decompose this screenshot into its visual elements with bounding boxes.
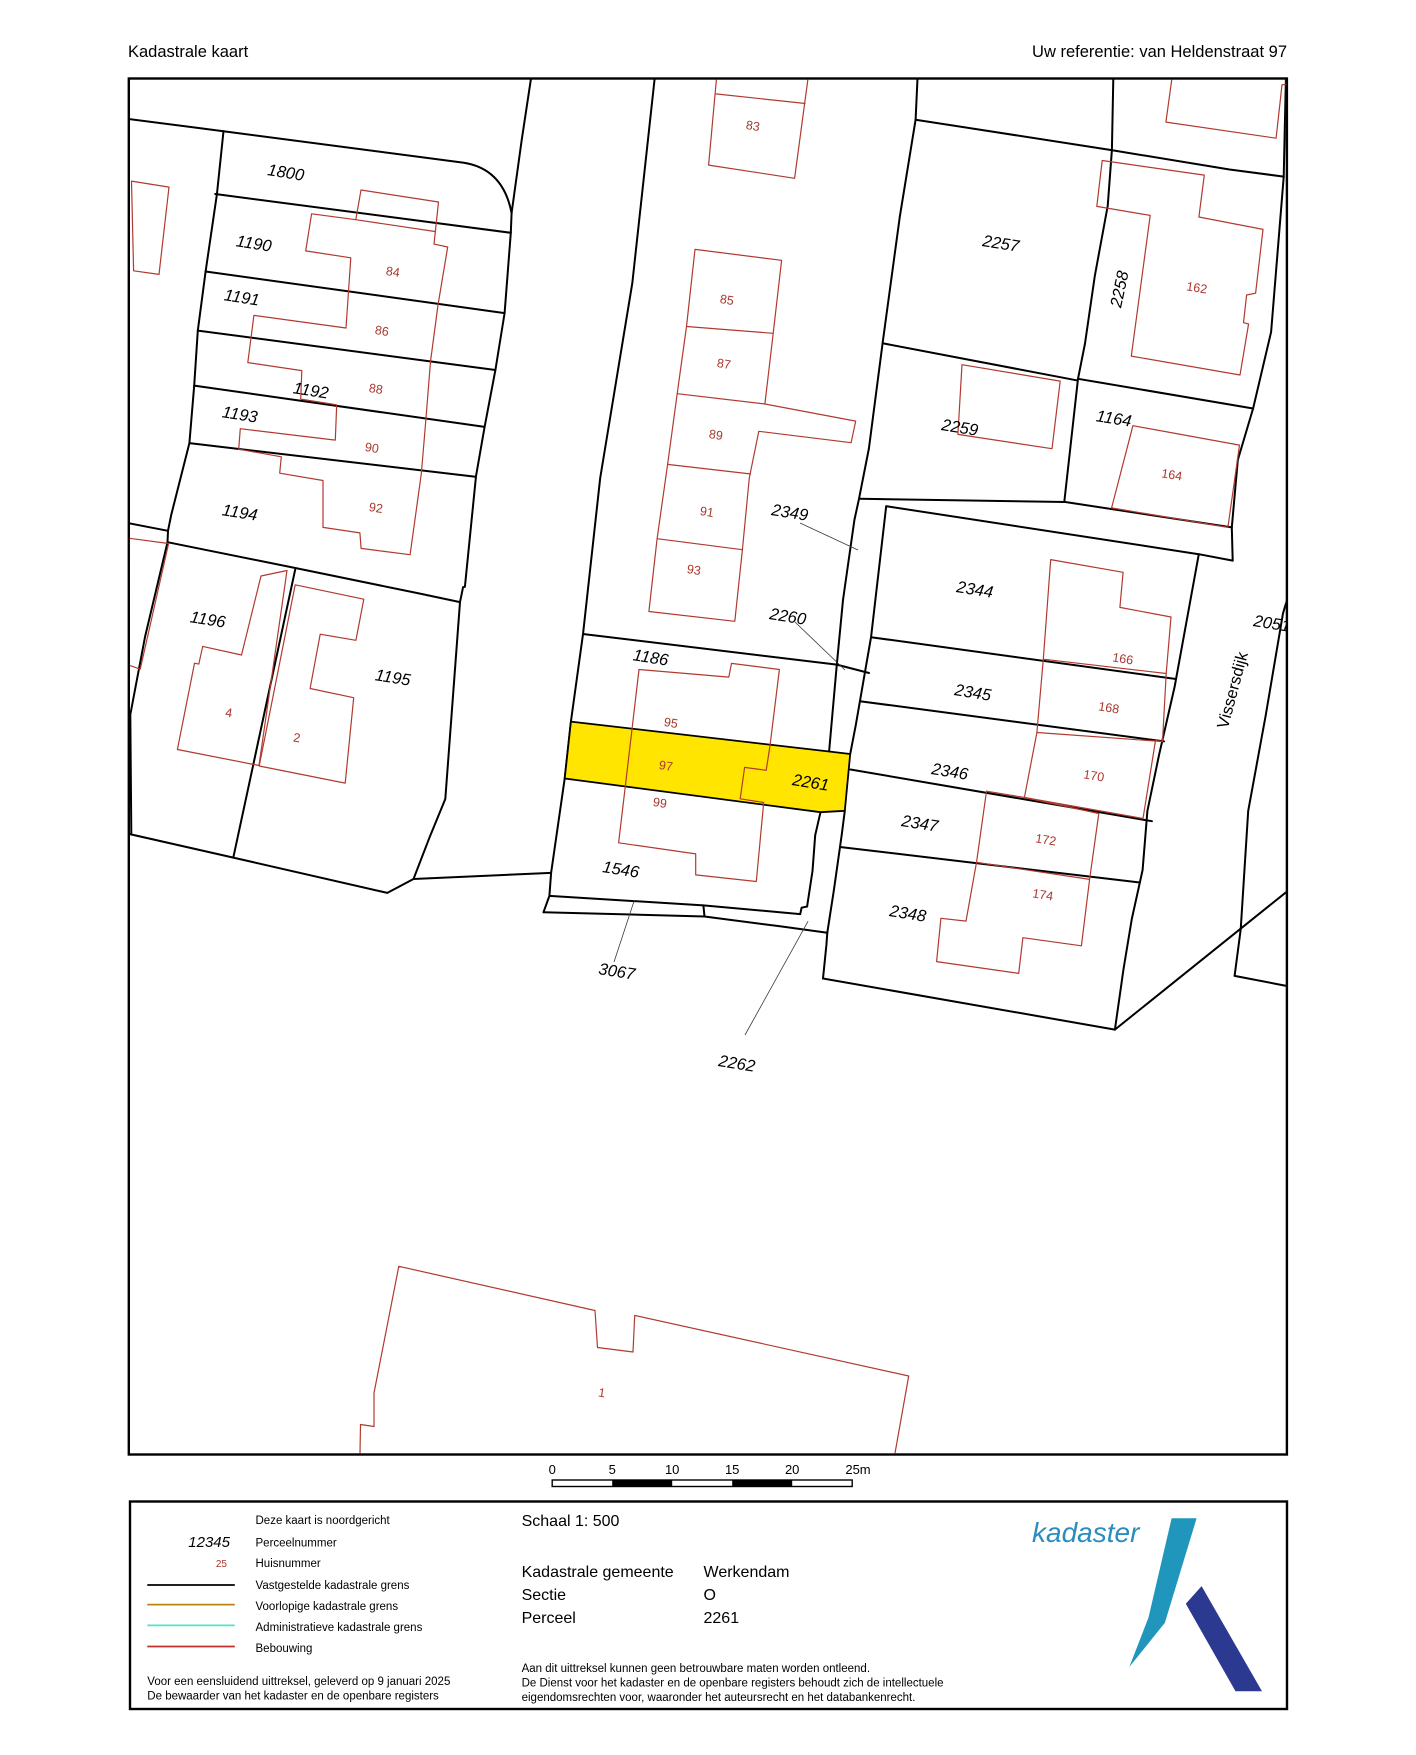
svg-text:90: 90 bbox=[364, 440, 380, 456]
svg-text:Perceel: Perceel bbox=[522, 1610, 576, 1627]
svg-text:1800: 1800 bbox=[266, 161, 306, 185]
svg-text:89: 89 bbox=[708, 427, 724, 443]
svg-text:166: 166 bbox=[1111, 650, 1134, 667]
svg-text:O: O bbox=[704, 1587, 716, 1604]
svg-text:168: 168 bbox=[1097, 699, 1120, 716]
svg-text:2257: 2257 bbox=[980, 232, 1021, 256]
svg-text:164: 164 bbox=[1160, 466, 1183, 483]
svg-text:84: 84 bbox=[385, 264, 401, 280]
svg-text:Vissersdijk: Vissersdijk bbox=[1214, 649, 1252, 730]
svg-text:2261: 2261 bbox=[704, 1610, 740, 1627]
svg-text:1186: 1186 bbox=[632, 646, 671, 669]
svg-text:162: 162 bbox=[1185, 279, 1208, 296]
svg-text:Bebouwing: Bebouwing bbox=[256, 1643, 313, 1655]
svg-text:1194: 1194 bbox=[221, 501, 259, 524]
svg-text:172: 172 bbox=[1034, 831, 1057, 848]
svg-text:87: 87 bbox=[716, 356, 732, 372]
svg-text:eigendomsrechten voor, waarond: eigendomsrechten voor, waaronder het aut… bbox=[522, 1692, 916, 1704]
svg-text:Deze kaart is noordgericht: Deze kaart is noordgericht bbox=[256, 1515, 391, 1527]
svg-text:Werkendam: Werkendam bbox=[704, 1564, 790, 1581]
svg-text:93: 93 bbox=[686, 562, 702, 578]
svg-text:1546: 1546 bbox=[601, 858, 641, 882]
svg-text:2262: 2262 bbox=[716, 1052, 756, 1076]
svg-text:20: 20 bbox=[785, 1462, 799, 1477]
svg-text:Vastgestelde kadastrale grens: Vastgestelde kadastrale grens bbox=[256, 1580, 410, 1592]
svg-text:1192: 1192 bbox=[292, 379, 330, 402]
svg-text:De Dienst voor het kadaster en: De Dienst voor het kadaster en de openba… bbox=[522, 1678, 944, 1690]
svg-text:Aan dit uittreksel kunnen geen: Aan dit uittreksel kunnen geen betrouwba… bbox=[522, 1663, 870, 1675]
svg-text:kadaster: kadaster bbox=[1032, 1517, 1141, 1548]
svg-text:92: 92 bbox=[368, 500, 384, 516]
svg-text:2347: 2347 bbox=[899, 812, 940, 836]
svg-text:2346: 2346 bbox=[929, 760, 970, 784]
svg-text:Schaal 1: 500: Schaal 1: 500 bbox=[522, 1513, 620, 1530]
svg-text:5: 5 bbox=[609, 1462, 616, 1477]
svg-text:De bewaarder van het kadaster: De bewaarder van het kadaster en de open… bbox=[147, 1691, 439, 1703]
svg-text:97: 97 bbox=[658, 758, 674, 774]
svg-text:2344: 2344 bbox=[954, 578, 994, 602]
svg-text:Kadastrale kaart: Kadastrale kaart bbox=[128, 43, 249, 61]
svg-text:2051: 2051 bbox=[1251, 612, 1291, 636]
svg-text:99: 99 bbox=[652, 795, 668, 811]
svg-text:Administratieve kadastrale gre: Administratieve kadastrale grens bbox=[256, 1622, 423, 1634]
svg-text:95: 95 bbox=[663, 715, 679, 731]
svg-text:10: 10 bbox=[665, 1462, 679, 1477]
svg-text:1190: 1190 bbox=[235, 232, 274, 255]
svg-text:2260: 2260 bbox=[767, 605, 808, 629]
svg-text:Kadastrale gemeente: Kadastrale gemeente bbox=[522, 1564, 674, 1581]
svg-text:2345: 2345 bbox=[952, 681, 993, 705]
svg-text:4: 4 bbox=[224, 706, 233, 721]
svg-text:1: 1 bbox=[597, 1386, 606, 1401]
svg-text:Uw referentie: van Heldenstraa: Uw referentie: van Heldenstraat 97 bbox=[1032, 43, 1287, 61]
svg-text:25: 25 bbox=[216, 1559, 228, 1570]
svg-text:2349: 2349 bbox=[769, 501, 809, 525]
svg-text:2259: 2259 bbox=[939, 416, 979, 440]
svg-text:1195: 1195 bbox=[374, 666, 413, 689]
svg-text:2348: 2348 bbox=[887, 902, 928, 926]
svg-text:86: 86 bbox=[374, 323, 390, 339]
svg-text:Voorlopige kadastrale grens: Voorlopige kadastrale grens bbox=[256, 1601, 399, 1613]
svg-text:3067: 3067 bbox=[597, 960, 637, 984]
svg-text:Sectie: Sectie bbox=[522, 1587, 567, 1604]
svg-text:Voor een eensluidend uittrekse: Voor een eensluidend uittreksel, gelever… bbox=[147, 1676, 450, 1688]
svg-text:1196: 1196 bbox=[189, 608, 228, 631]
svg-text:2258: 2258 bbox=[1107, 269, 1133, 310]
svg-text:91: 91 bbox=[699, 504, 715, 520]
svg-text:85: 85 bbox=[719, 292, 735, 308]
svg-text:15: 15 bbox=[725, 1462, 739, 1477]
svg-text:Huisnummer: Huisnummer bbox=[256, 1558, 321, 1570]
svg-text:12345: 12345 bbox=[188, 1534, 230, 1551]
svg-text:1191: 1191 bbox=[223, 286, 261, 309]
svg-text:25m: 25m bbox=[845, 1462, 870, 1477]
svg-text:1193: 1193 bbox=[221, 403, 260, 426]
svg-text:88: 88 bbox=[368, 381, 384, 397]
svg-text:174: 174 bbox=[1031, 886, 1054, 903]
svg-text:0: 0 bbox=[549, 1462, 556, 1477]
svg-text:170: 170 bbox=[1082, 767, 1105, 784]
svg-text:Perceelnummer: Perceelnummer bbox=[256, 1538, 337, 1550]
svg-text:83: 83 bbox=[745, 118, 761, 134]
svg-text:2: 2 bbox=[292, 731, 301, 746]
svg-text:1164: 1164 bbox=[1095, 407, 1133, 430]
